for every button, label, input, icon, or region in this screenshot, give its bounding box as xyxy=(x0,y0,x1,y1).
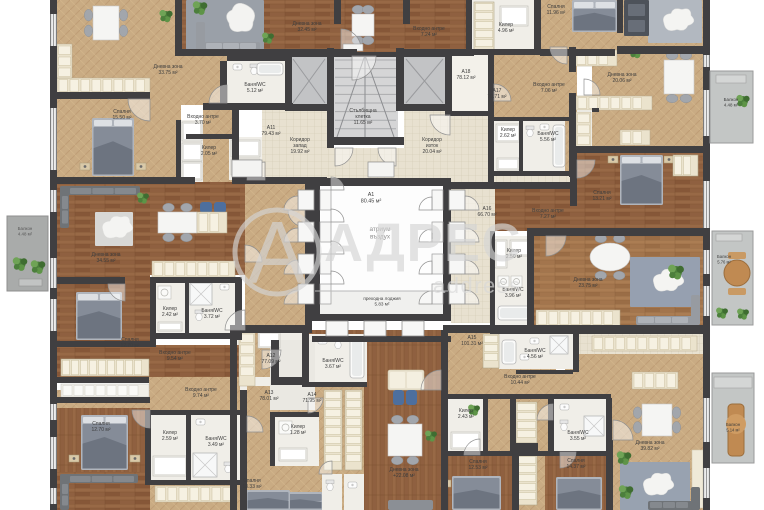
svg-text:Спалня12.70 м²: Спалня12.70 м² xyxy=(120,337,139,349)
svg-text:Баня/WC4.56 м²: Баня/WC4.56 м² xyxy=(524,348,546,360)
svg-text:Килер4.96 м²: Килер4.96 м² xyxy=(498,22,515,34)
svg-text:Спалня11.96 м²: Спалня11.96 м² xyxy=(547,4,566,16)
svg-text:Килер2.05 м²: Килер2.05 м² xyxy=(201,145,218,157)
svg-text:Баня/WC5.56 м²: Баня/WC5.56 м² xyxy=(537,131,559,143)
svg-text:Килер1.28 м²: Килер1.28 м² xyxy=(290,424,307,436)
svg-text:А: А xyxy=(248,203,307,302)
svg-text:Килер2.42 м²: Килер2.42 м² xyxy=(162,306,179,318)
svg-text:Килер2.59 м²: Килер2.59 м² xyxy=(162,430,179,442)
svg-text:Балкон4.48 м²: Балкон4.48 м² xyxy=(18,226,33,237)
svg-text:Спалня14.37 м²: Спалня14.37 м² xyxy=(566,458,585,470)
svg-text:Спалня12.53 м²: Спалня12.53 м² xyxy=(468,459,487,471)
svg-text:Спалня12.70 м²: Спалня12.70 м² xyxy=(91,421,110,433)
svg-text:Балкон4.48 м²: Балкон4.48 м² xyxy=(724,97,739,108)
svg-text:Баня/WC3.55 м²: Баня/WC3.55 м² xyxy=(567,430,589,442)
svg-text:Баня/WC3.72 м²: Баня/WC3.72 м² xyxy=(201,308,223,320)
svg-text:АДРЕС: АДРЕС xyxy=(324,213,522,273)
svg-text:Спалня13.33 м²: Спалня13.33 м² xyxy=(242,478,261,490)
svg-text:Балкон5.14 м²: Балкон5.14 м² xyxy=(726,422,741,432)
svg-text:Спалня15.50 м²: Спалня15.50 м² xyxy=(112,109,131,121)
svg-text:Баня/WC3.67 м²: Баня/WC3.67 м² xyxy=(322,358,344,370)
svg-text:Баня/WC3.49 м²: Баня/WC3.49 м² xyxy=(205,436,227,448)
svg-text:Балкон5.76 м²: Балкон5.76 м² xyxy=(717,254,732,264)
svg-text:Килер2.43 м²: Килер2.43 м² xyxy=(458,408,475,420)
svg-text:Дневна зона+22.08 м²: Дневна зона+22.08 м² xyxy=(389,467,418,479)
svg-text:Спалня13.21 м²: Спалня13.21 м² xyxy=(592,190,611,202)
svg-text:address: address xyxy=(433,273,522,298)
svg-text:Баня/WC5.12 м²: Баня/WC5.12 м² xyxy=(244,82,266,94)
svg-text:Килер2.62 м²: Килер2.62 м² xyxy=(500,127,517,139)
